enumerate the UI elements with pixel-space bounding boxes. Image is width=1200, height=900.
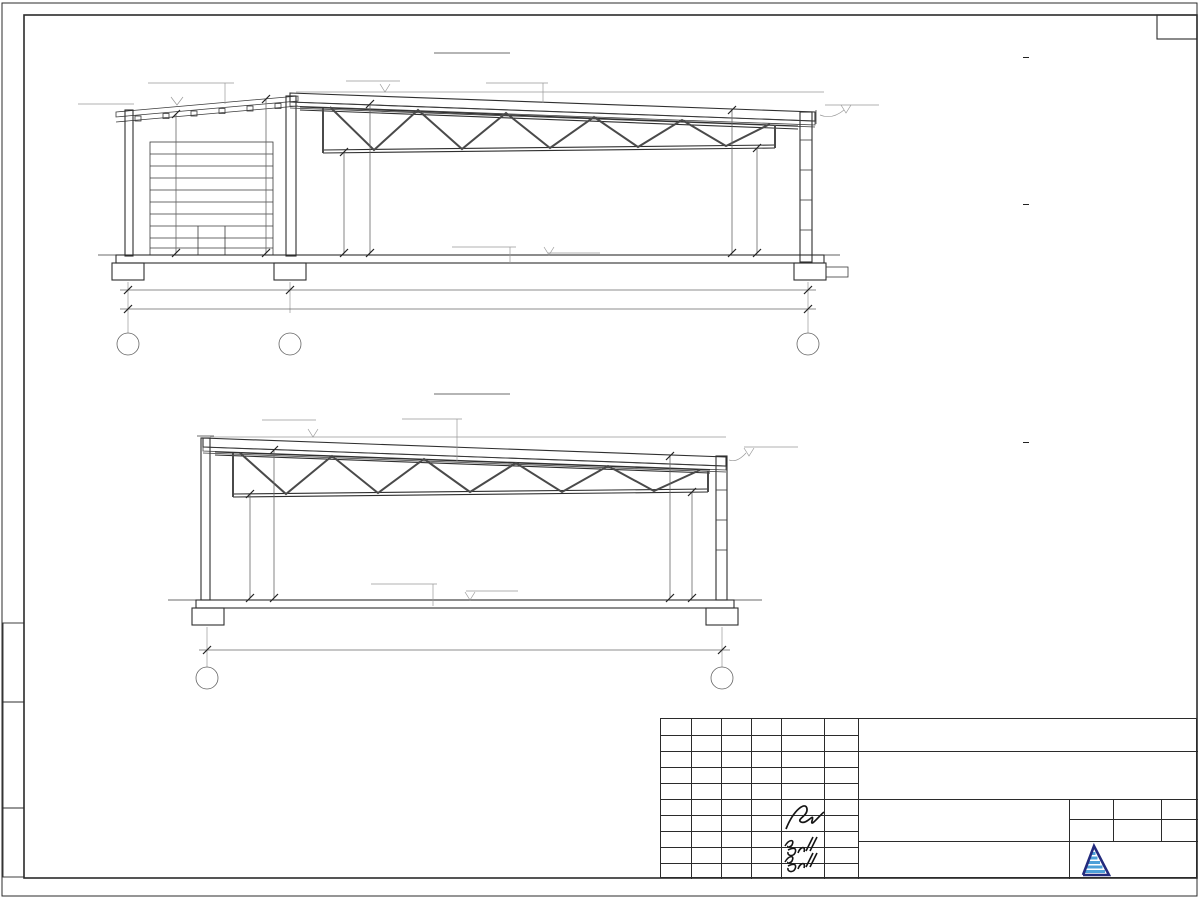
grid-bubble	[117, 333, 139, 355]
title-block	[660, 718, 1197, 878]
bottom-dims-44	[196, 627, 733, 689]
composition-title	[1023, 441, 1029, 443]
roof-deck-44	[203, 438, 726, 466]
elevation-ridge-33	[346, 81, 400, 92]
company-logo	[1069, 841, 1197, 878]
wall-grid-a	[800, 112, 812, 262]
composition-list-2	[880, 203, 1172, 227]
composition-title	[1023, 56, 1029, 58]
floor-slab-44	[196, 600, 734, 608]
signature-icon	[781, 850, 823, 876]
section-33	[78, 53, 879, 355]
composition-list-1	[880, 56, 1172, 88]
elevation-right-33	[820, 105, 879, 117]
bottom-dims-33	[117, 282, 819, 355]
wall-grid-a-44	[716, 456, 727, 600]
wall-grid-e	[286, 96, 296, 256]
elevation-ridge-44	[262, 420, 318, 437]
format-box	[1157, 15, 1197, 39]
vertical-dims-33	[172, 95, 761, 257]
vertical-dims-44	[246, 446, 696, 602]
grid-bubble	[279, 333, 301, 355]
roof-truss-44	[215, 452, 710, 497]
floor-slab	[116, 255, 824, 263]
left-margin-cells	[3, 623, 24, 877]
leader-sostav3	[148, 83, 234, 104]
grid-bubble	[196, 667, 218, 689]
composition-title	[1023, 203, 1029, 205]
elevation-floor-33	[544, 247, 600, 255]
drawing-sheet	[0, 0, 1200, 900]
sheet-name	[858, 841, 1069, 878]
wall-grid-zh	[125, 110, 133, 256]
composition-list-3	[880, 441, 1172, 455]
elevation-annex	[78, 97, 183, 105]
wall-grid-e-44	[201, 438, 210, 600]
elevation-floor-44	[465, 591, 518, 600]
leader-sostav1-44	[371, 584, 437, 606]
roof-truss	[300, 107, 798, 153]
grid-bubble	[797, 333, 819, 355]
annex-door-panel	[150, 142, 273, 255]
logo-pyramid-icon	[1077, 842, 1117, 878]
section-44	[168, 394, 798, 689]
signature-icon	[782, 799, 826, 835]
elevation-right-44	[729, 447, 798, 461]
grid-bubble	[711, 667, 733, 689]
